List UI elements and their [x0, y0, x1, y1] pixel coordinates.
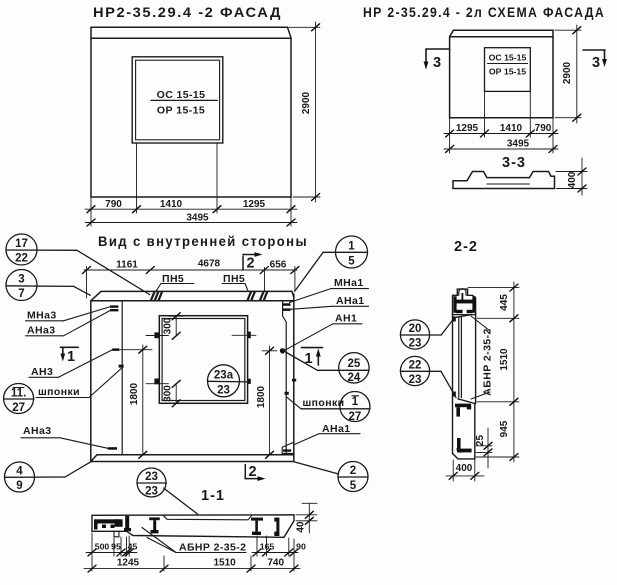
svg-text:ОР 15-15: ОР 15-15 — [489, 67, 526, 77]
svg-text:1410: 1410 — [500, 123, 523, 134]
svg-text:АН1: АН1 — [335, 313, 357, 325]
svg-text:27: 27 — [12, 402, 25, 414]
svg-text:2900: 2900 — [301, 91, 312, 114]
svg-text:АБНР 2-35-2: АБНР 2-35-2 — [482, 328, 494, 395]
svg-text:АБНР 2-35-2: АБНР 2-35-2 — [179, 542, 246, 554]
svg-text:1245: 1245 — [117, 558, 140, 569]
svg-text:25: 25 — [475, 435, 486, 447]
svg-text:790: 790 — [535, 123, 552, 134]
svg-text:23: 23 — [409, 338, 422, 350]
svg-text:3-3: 3-3 — [502, 155, 526, 171]
svg-text:20: 20 — [409, 323, 422, 335]
svg-text:1161: 1161 — [116, 259, 138, 270]
svg-text:3: 3 — [433, 55, 442, 71]
svg-text:1510: 1510 — [213, 558, 236, 569]
svg-text:1800: 1800 — [129, 382, 140, 405]
svg-text:300: 300 — [163, 385, 174, 402]
svg-text:МНа3: МНа3 — [27, 310, 57, 322]
svg-text:4678: 4678 — [198, 258, 221, 269]
svg-text:90: 90 — [296, 542, 306, 552]
svg-text:4: 4 — [16, 466, 23, 478]
svg-text:2900: 2900 — [562, 61, 573, 84]
svg-text:445: 445 — [499, 294, 510, 311]
svg-text:27: 27 — [349, 411, 362, 423]
svg-text:500: 500 — [95, 542, 110, 552]
svg-text:2-2: 2-2 — [454, 239, 478, 255]
svg-text:АНа3: АНа3 — [23, 425, 51, 437]
svg-text:Вид с внутренней стороны: Вид с внутренней стороны — [98, 233, 308, 249]
svg-text:2: 2 — [247, 256, 256, 272]
svg-text:25: 25 — [348, 358, 361, 370]
svg-text:1410: 1410 — [160, 199, 183, 210]
svg-text:шпонки: шпонки — [303, 397, 345, 409]
svg-text:НР2-35.29.4 -2 ФАСАД: НР2-35.29.4 -2 ФАСАД — [93, 4, 282, 20]
svg-text:АН3: АН3 — [31, 366, 53, 378]
svg-text:3495: 3495 — [507, 139, 530, 150]
svg-text:11.: 11. — [11, 388, 26, 400]
svg-text:45: 45 — [128, 542, 138, 552]
svg-text:ОС 15-15: ОС 15-15 — [489, 53, 527, 63]
svg-text:22: 22 — [15, 253, 28, 265]
svg-text:1295: 1295 — [243, 199, 266, 210]
svg-text:656: 656 — [270, 259, 287, 270]
svg-text:400: 400 — [567, 171, 578, 188]
svg-text:945: 945 — [499, 420, 510, 437]
svg-text:ОС 15-15: ОС 15-15 — [157, 89, 206, 101]
svg-text:1295: 1295 — [456, 123, 479, 134]
svg-text:ОР 15-15: ОР 15-15 — [157, 105, 205, 117]
svg-text:5: 5 — [350, 480, 357, 492]
svg-text:3: 3 — [592, 55, 601, 71]
svg-text:40: 40 — [296, 521, 307, 533]
svg-text:24: 24 — [348, 372, 361, 384]
svg-text:23: 23 — [145, 486, 158, 498]
svg-text:1: 1 — [348, 241, 355, 253]
svg-text:95: 95 — [111, 542, 121, 552]
svg-text:АНа3: АНа3 — [27, 325, 55, 337]
svg-text:23а: 23а — [214, 370, 234, 382]
svg-text:23: 23 — [409, 374, 422, 386]
svg-text:АНа1: АНа1 — [336, 295, 364, 307]
svg-text:790: 790 — [105, 199, 122, 210]
svg-text:165: 165 — [260, 542, 275, 552]
svg-text:7: 7 — [18, 288, 24, 300]
svg-text:НР 2-35.29.4 - 2л СХЕМА ФАСАДА: НР 2-35.29.4 - 2л СХЕМА ФАСАДА — [363, 4, 605, 20]
svg-text:1800: 1800 — [256, 385, 267, 408]
svg-text:шпонки: шпонки — [38, 386, 80, 398]
svg-text:1510: 1510 — [499, 348, 510, 371]
svg-text:1: 1 — [352, 396, 359, 408]
svg-text:23: 23 — [145, 471, 158, 483]
svg-text:17: 17 — [15, 238, 28, 250]
svg-text:23: 23 — [217, 385, 230, 397]
svg-text:22: 22 — [409, 360, 422, 372]
svg-text:300: 300 — [163, 317, 174, 334]
svg-text:МНа1: МНа1 — [334, 277, 364, 289]
svg-text:3: 3 — [18, 274, 24, 286]
svg-text:400: 400 — [456, 463, 473, 474]
svg-text:3495: 3495 — [186, 213, 209, 224]
svg-text:5: 5 — [348, 256, 355, 268]
svg-text:740: 740 — [267, 558, 284, 569]
svg-text:2: 2 — [249, 464, 258, 480]
svg-text:9: 9 — [16, 480, 22, 492]
svg-text:1: 1 — [67, 349, 76, 365]
svg-text:1-1: 1-1 — [201, 488, 225, 504]
svg-text:2: 2 — [350, 465, 356, 477]
svg-text:1: 1 — [305, 351, 314, 367]
